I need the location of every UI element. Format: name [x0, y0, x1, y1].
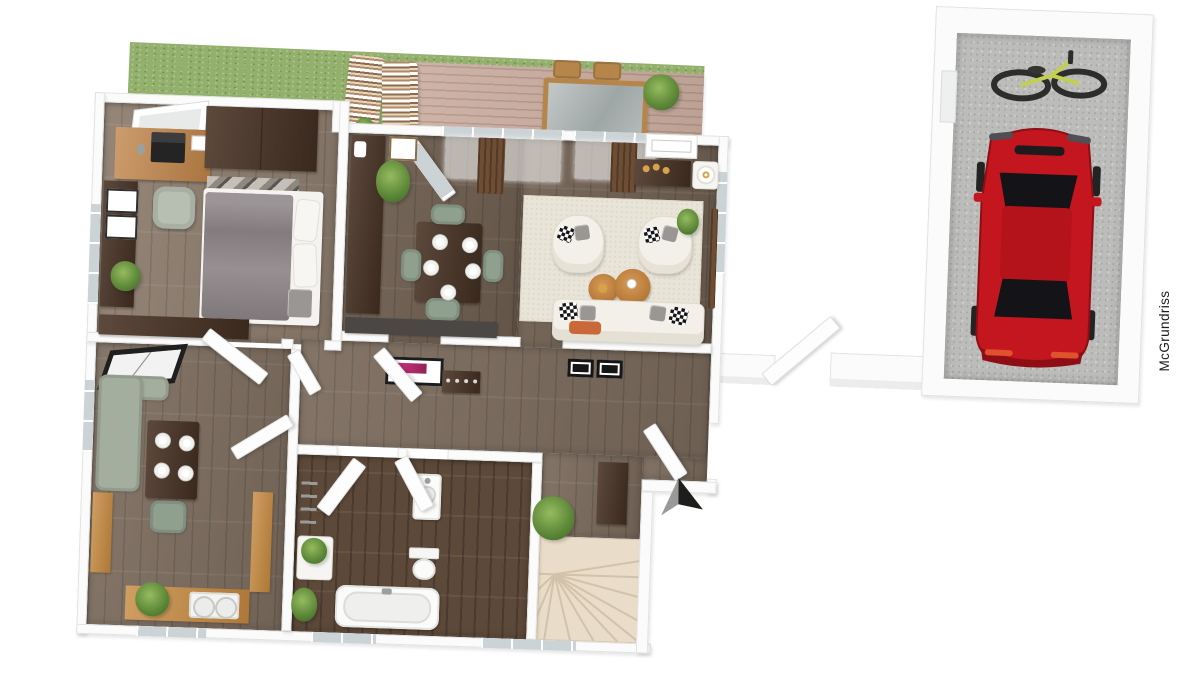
garage-window — [940, 70, 958, 123]
dining-chair — [483, 250, 504, 283]
kitchen-table — [145, 420, 200, 500]
dining-sideboard — [345, 135, 385, 314]
toilet-bowl — [412, 558, 436, 580]
armchair — [551, 214, 605, 274]
curtain-panel — [610, 142, 638, 193]
kitchen-counter-right — [250, 492, 273, 593]
dining-wall-art — [389, 136, 418, 161]
watermark: McGrundriss — [1157, 269, 1175, 393]
north-arrow-icon — [654, 475, 709, 521]
dining-chair — [425, 298, 460, 321]
kitchen-counter-left — [90, 492, 113, 573]
wardrobe — [204, 106, 318, 172]
wall-bedroom-bottom-c — [324, 340, 341, 351]
bicycle — [988, 46, 1112, 111]
sofa-pillow-checkered — [559, 302, 579, 321]
tub-faucet — [382, 588, 392, 594]
front-door-leaf — [761, 316, 840, 386]
outdoor-chair — [593, 61, 622, 80]
red-car — [966, 110, 1106, 373]
hall-cabinet — [596, 462, 628, 525]
outdoor-chair — [553, 60, 582, 79]
bathroom-window-bottom — [311, 632, 376, 644]
floor-plan-scene: McGrundriss — [0, 0, 1200, 675]
wall-bedroom-bottom-b — [281, 339, 293, 349]
shoe-cabinet — [567, 359, 594, 378]
duvet — [201, 192, 293, 321]
double-sink — [189, 592, 240, 620]
dining-chair — [431, 204, 466, 225]
corner-bench-side — [95, 374, 143, 491]
orange-throw — [569, 321, 601, 335]
toilet-tank — [409, 547, 439, 559]
vase — [354, 141, 367, 157]
house — [75, 92, 739, 674]
shoe-cabinet — [596, 360, 623, 379]
bathtub — [334, 585, 439, 631]
towel-ladder — [300, 475, 318, 524]
office-chair — [152, 186, 195, 229]
pillow-gray — [287, 289, 312, 318]
stairs-window-bottom — [481, 638, 576, 651]
garage — [921, 6, 1154, 404]
mantel — [645, 133, 698, 159]
coat-rack — [442, 370, 481, 393]
curtain-panel — [477, 137, 506, 194]
sofa-pillow — [579, 305, 596, 321]
kitchen-chair — [150, 500, 187, 533]
pillow — [292, 243, 318, 288]
kitchen-window-bottom — [136, 626, 206, 638]
dining-chair — [401, 249, 422, 282]
leaning-frame — [105, 214, 138, 239]
wall-bathroom-top-a — [297, 444, 337, 455]
laptop — [151, 132, 186, 163]
gray-pillow — [573, 224, 590, 241]
sofa-pillow-checkered — [668, 306, 689, 326]
checkered-pillow — [643, 226, 661, 244]
leaning-frame — [106, 188, 139, 213]
winder-staircase — [536, 536, 650, 644]
sofa-pillow — [649, 305, 667, 322]
pillow — [292, 198, 321, 243]
